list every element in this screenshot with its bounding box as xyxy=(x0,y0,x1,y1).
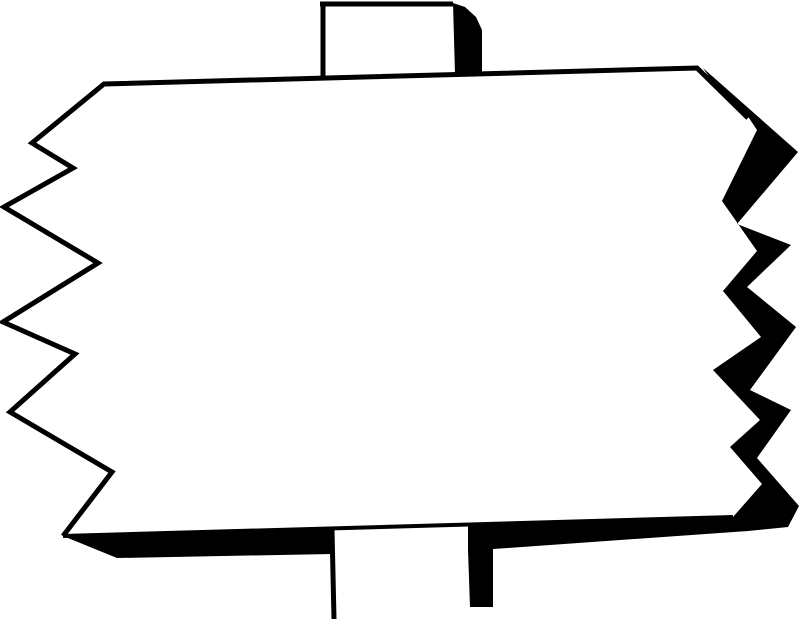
illustration-canvas xyxy=(0,0,800,621)
bottom-post-left-line xyxy=(332,530,334,619)
sign-board-face xyxy=(3,68,762,536)
blank-sign-clipart xyxy=(0,0,800,621)
top-post-right-shadow xyxy=(453,3,482,74)
